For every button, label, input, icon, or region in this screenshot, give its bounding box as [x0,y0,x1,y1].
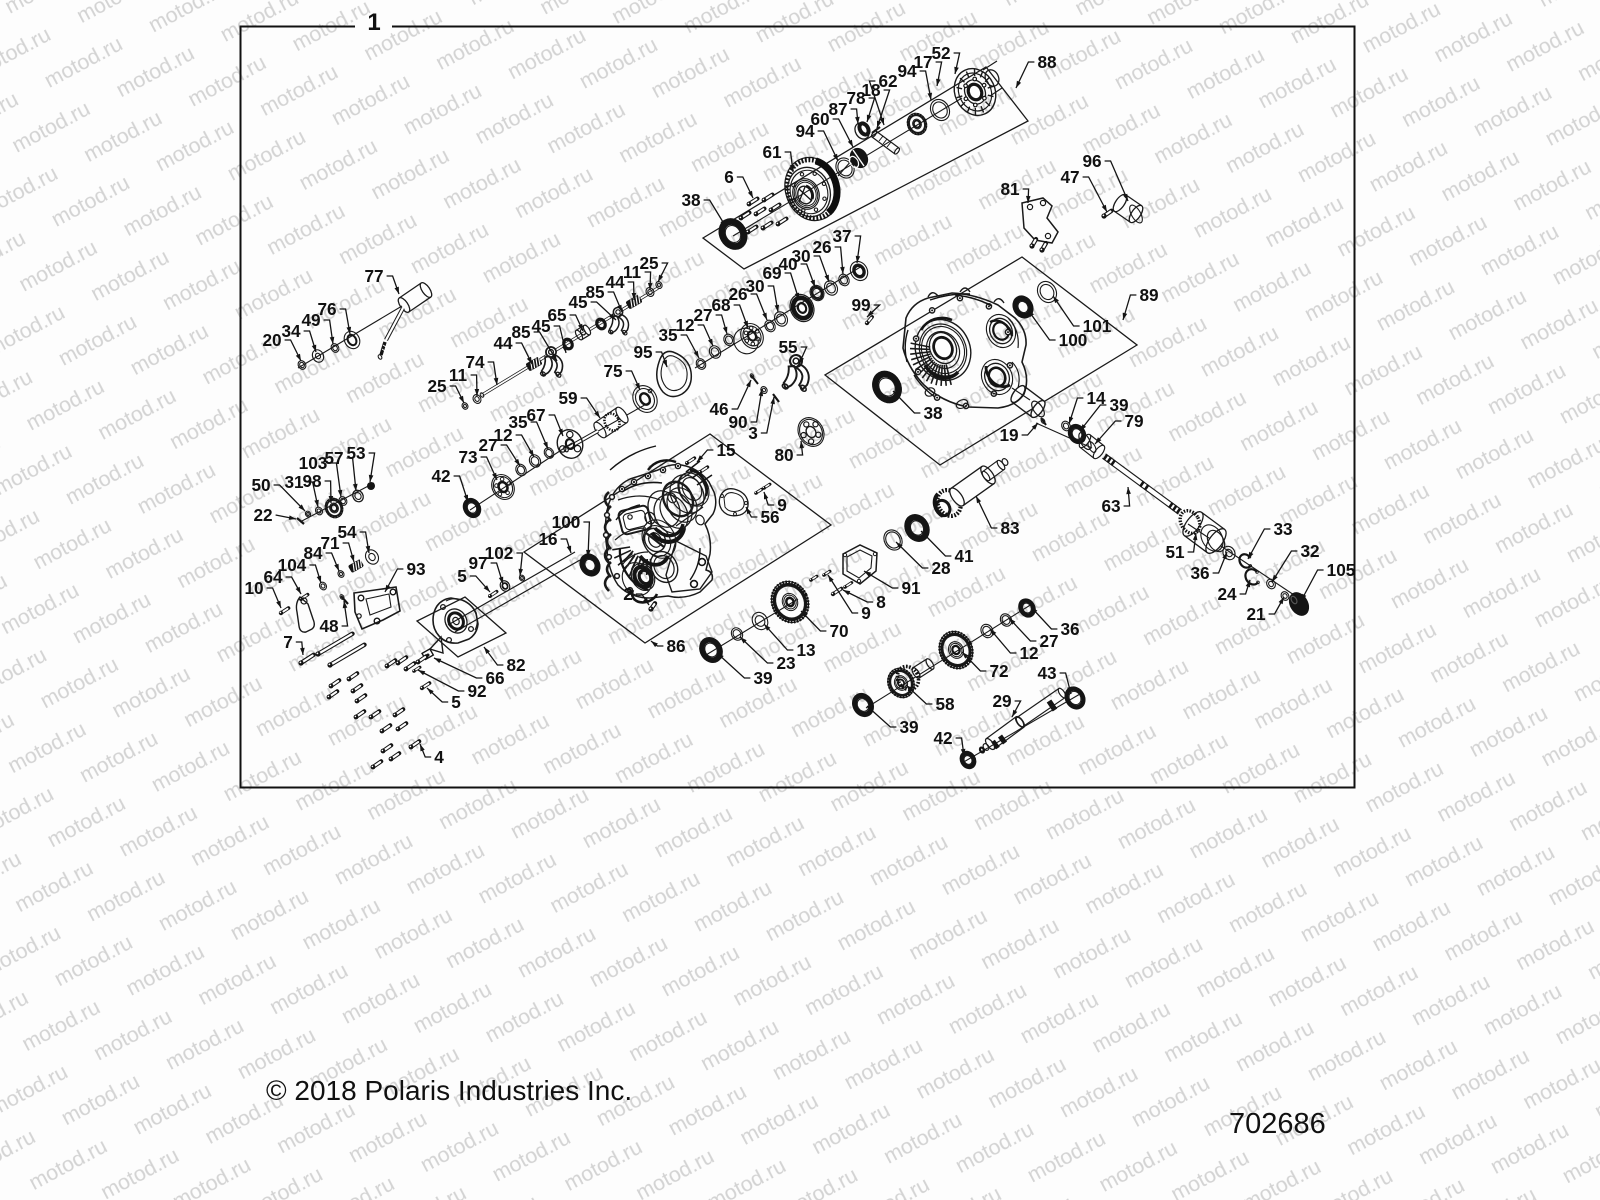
svg-text:21: 21 [1246,604,1266,624]
svg-text:15: 15 [716,440,736,460]
svg-text:5: 5 [457,566,467,586]
svg-text:2: 2 [623,584,633,604]
svg-text:9: 9 [777,495,787,515]
svg-text:85: 85 [585,282,605,302]
svg-text:25: 25 [427,376,447,396]
svg-text:3: 3 [748,423,758,443]
svg-text:44: 44 [605,272,625,292]
svg-text:32: 32 [1300,541,1319,561]
svg-text:16: 16 [538,529,557,549]
svg-text:77: 77 [364,266,383,286]
svg-text:19: 19 [999,425,1018,445]
svg-text:© 2018 Polaris Industries Inc.: © 2018 Polaris Industries Inc. [266,1075,632,1106]
svg-text:27: 27 [1039,631,1058,651]
svg-text:103: 103 [299,453,328,473]
svg-text:12: 12 [675,315,694,335]
svg-text:94: 94 [897,61,917,81]
svg-text:80: 80 [774,445,793,465]
svg-text:8: 8 [876,592,886,612]
svg-text:85: 85 [511,322,531,342]
svg-text:96: 96 [1082,151,1101,171]
svg-text:57: 57 [324,448,343,468]
svg-text:51: 51 [1165,542,1185,562]
svg-text:45: 45 [568,292,588,312]
svg-text:29: 29 [992,691,1011,711]
svg-text:81: 81 [1000,179,1020,199]
svg-text:62: 62 [878,71,897,91]
svg-text:43: 43 [1037,663,1056,683]
svg-text:53: 53 [346,443,365,463]
svg-text:58: 58 [935,694,955,714]
svg-text:52: 52 [931,43,950,63]
svg-text:1: 1 [367,9,380,36]
svg-text:24: 24 [1217,584,1237,604]
svg-text:59: 59 [558,388,577,408]
svg-text:97: 97 [468,553,487,573]
svg-text:42: 42 [933,728,952,748]
svg-text:93: 93 [406,559,425,579]
svg-text:49: 49 [301,310,320,330]
svg-text:7: 7 [283,632,293,652]
svg-text:33: 33 [1273,519,1292,539]
svg-text:99: 99 [851,295,870,315]
svg-text:13: 13 [796,640,815,660]
svg-text:27: 27 [693,305,712,325]
svg-text:100: 100 [1059,330,1088,350]
svg-text:90: 90 [728,412,747,432]
svg-text:46: 46 [709,399,728,419]
svg-text:69: 69 [762,263,781,283]
svg-text:41: 41 [954,546,974,566]
svg-text:44: 44 [493,333,513,353]
svg-text:82: 82 [506,655,525,675]
svg-text:71: 71 [320,533,340,553]
svg-text:87: 87 [828,99,847,119]
svg-text:98: 98 [302,471,322,491]
svg-text:66: 66 [485,668,504,688]
svg-text:28: 28 [931,558,951,578]
svg-text:31: 31 [284,472,304,492]
svg-text:45: 45 [531,316,551,336]
svg-text:35: 35 [658,325,678,345]
svg-text:36: 36 [1190,563,1209,583]
svg-text:36: 36 [1060,619,1079,639]
svg-text:74: 74 [465,352,485,372]
svg-text:9: 9 [861,603,871,623]
svg-text:38: 38 [923,403,943,423]
svg-text:47: 47 [1060,167,1079,187]
svg-text:55: 55 [778,337,798,357]
svg-text:37: 37 [832,226,851,246]
svg-text:102: 102 [485,543,514,563]
svg-text:94: 94 [795,121,815,141]
svg-text:12: 12 [1019,643,1038,663]
svg-text:91: 91 [901,578,921,598]
svg-text:92: 92 [467,681,486,701]
svg-text:6: 6 [724,167,734,187]
svg-text:11: 11 [623,262,642,282]
svg-text:39: 39 [753,668,772,688]
svg-text:73: 73 [458,447,477,467]
svg-text:25: 25 [639,253,659,273]
svg-text:27: 27 [478,435,497,455]
svg-text:89: 89 [1139,285,1158,305]
svg-text:68: 68 [711,295,731,315]
svg-text:22: 22 [253,505,272,525]
svg-text:26: 26 [728,284,747,304]
svg-text:26: 26 [812,237,831,257]
svg-text:11: 11 [449,365,468,385]
svg-text:78: 78 [846,88,866,108]
svg-text:39: 39 [899,717,918,737]
svg-text:72: 72 [989,661,1008,681]
svg-text:702686: 702686 [1229,1108,1326,1140]
svg-text:54: 54 [337,522,357,542]
svg-text:63: 63 [1101,496,1120,516]
svg-text:88: 88 [1037,52,1057,72]
svg-text:64: 64 [263,567,283,587]
svg-text:75: 75 [603,361,623,381]
svg-text:48: 48 [319,616,339,636]
svg-text:30: 30 [745,276,764,296]
svg-text:4: 4 [434,747,444,767]
svg-text:10: 10 [244,578,263,598]
svg-text:83: 83 [1000,518,1019,538]
svg-text:42: 42 [431,466,450,486]
svg-text:79: 79 [1124,411,1143,431]
svg-text:84: 84 [303,543,323,563]
svg-text:34: 34 [281,321,301,341]
svg-text:105: 105 [1327,560,1356,580]
svg-text:70: 70 [829,621,848,641]
svg-text:23: 23 [776,653,795,673]
svg-text:5: 5 [451,692,461,712]
svg-text:20: 20 [262,330,281,350]
svg-text:38: 38 [681,190,701,210]
svg-text:50: 50 [251,475,270,495]
svg-text:61: 61 [762,142,782,162]
svg-text:95: 95 [633,342,653,362]
svg-text:86: 86 [666,636,685,656]
